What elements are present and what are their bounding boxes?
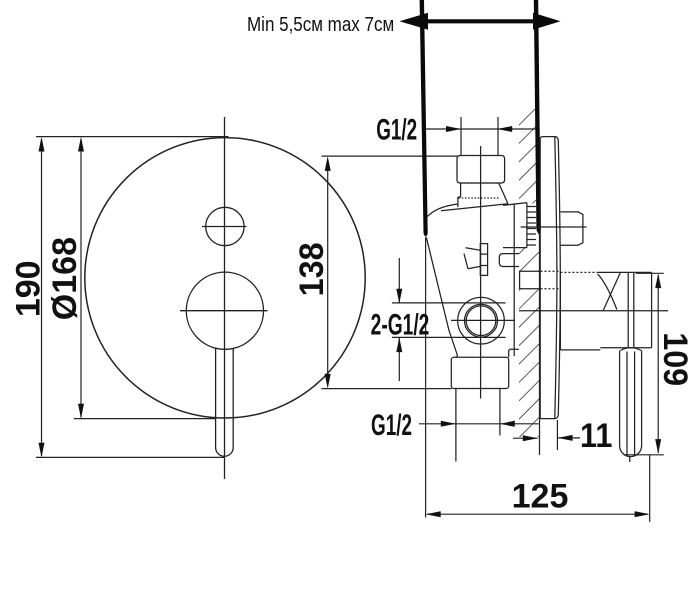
- svg-text:190: 190: [10, 260, 48, 317]
- svg-text:109: 109: [656, 332, 694, 386]
- svg-text:138: 138: [293, 242, 331, 296]
- svg-text:2-G1/2: 2-G1/2: [371, 308, 430, 341]
- svg-text:Min 5,5см max 7см: Min 5,5см max 7см: [247, 13, 394, 36]
- svg-text:G1/2: G1/2: [376, 113, 417, 147]
- svg-text:11: 11: [580, 416, 612, 454]
- svg-text:125: 125: [512, 477, 569, 515]
- svg-text:Ø168: Ø168: [46, 237, 84, 320]
- svg-text:G1/2: G1/2: [371, 408, 412, 442]
